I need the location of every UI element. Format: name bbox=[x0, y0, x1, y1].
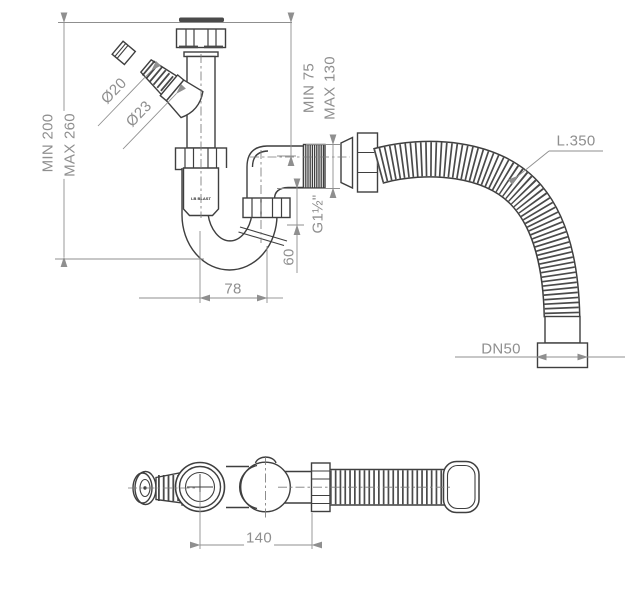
dim-height-min-label: MIN 200 bbox=[41, 112, 56, 175]
dim-outlet-thread-label: G1½" bbox=[311, 194, 326, 233]
sink-flange bbox=[179, 18, 224, 23]
flexible-hose bbox=[378, 159, 562, 317]
dim-trap-width-label: 78 bbox=[222, 282, 243, 297]
hose-nut bbox=[358, 133, 378, 192]
hose-end-connector bbox=[538, 317, 588, 368]
dim-inlet-min-label: MIN 75 bbox=[302, 63, 317, 113]
trap-bend-bottom bbox=[240, 457, 291, 512]
dim-outlet-drop-label: 60 bbox=[282, 246, 297, 267]
trap-union-nut bbox=[243, 198, 290, 218]
technical-drawing-page: MIN 200 MAX 260 Ø20 Ø23 MIN 75 MAX 130 G… bbox=[0, 0, 635, 600]
outlet-thread bbox=[304, 145, 326, 189]
branch-cap bbox=[112, 41, 135, 64]
dim-hose-length-label: L.350 bbox=[556, 134, 595, 149]
slip-nut-top bbox=[177, 29, 226, 48]
hose-gasket bbox=[341, 138, 353, 189]
brand-mark: LB BLAST bbox=[191, 197, 211, 201]
drawing-canvas bbox=[0, 0, 635, 600]
bottom-view bbox=[128, 456, 479, 518]
dim-trap-length-label: 140 bbox=[244, 531, 274, 546]
dim-hose-outlet-label: DN50 bbox=[481, 342, 521, 357]
dim-inlet-max-label: MAX 130 bbox=[323, 56, 338, 120]
front-view bbox=[112, 18, 587, 368]
dim-height-max-label: MAX 260 bbox=[63, 111, 78, 179]
